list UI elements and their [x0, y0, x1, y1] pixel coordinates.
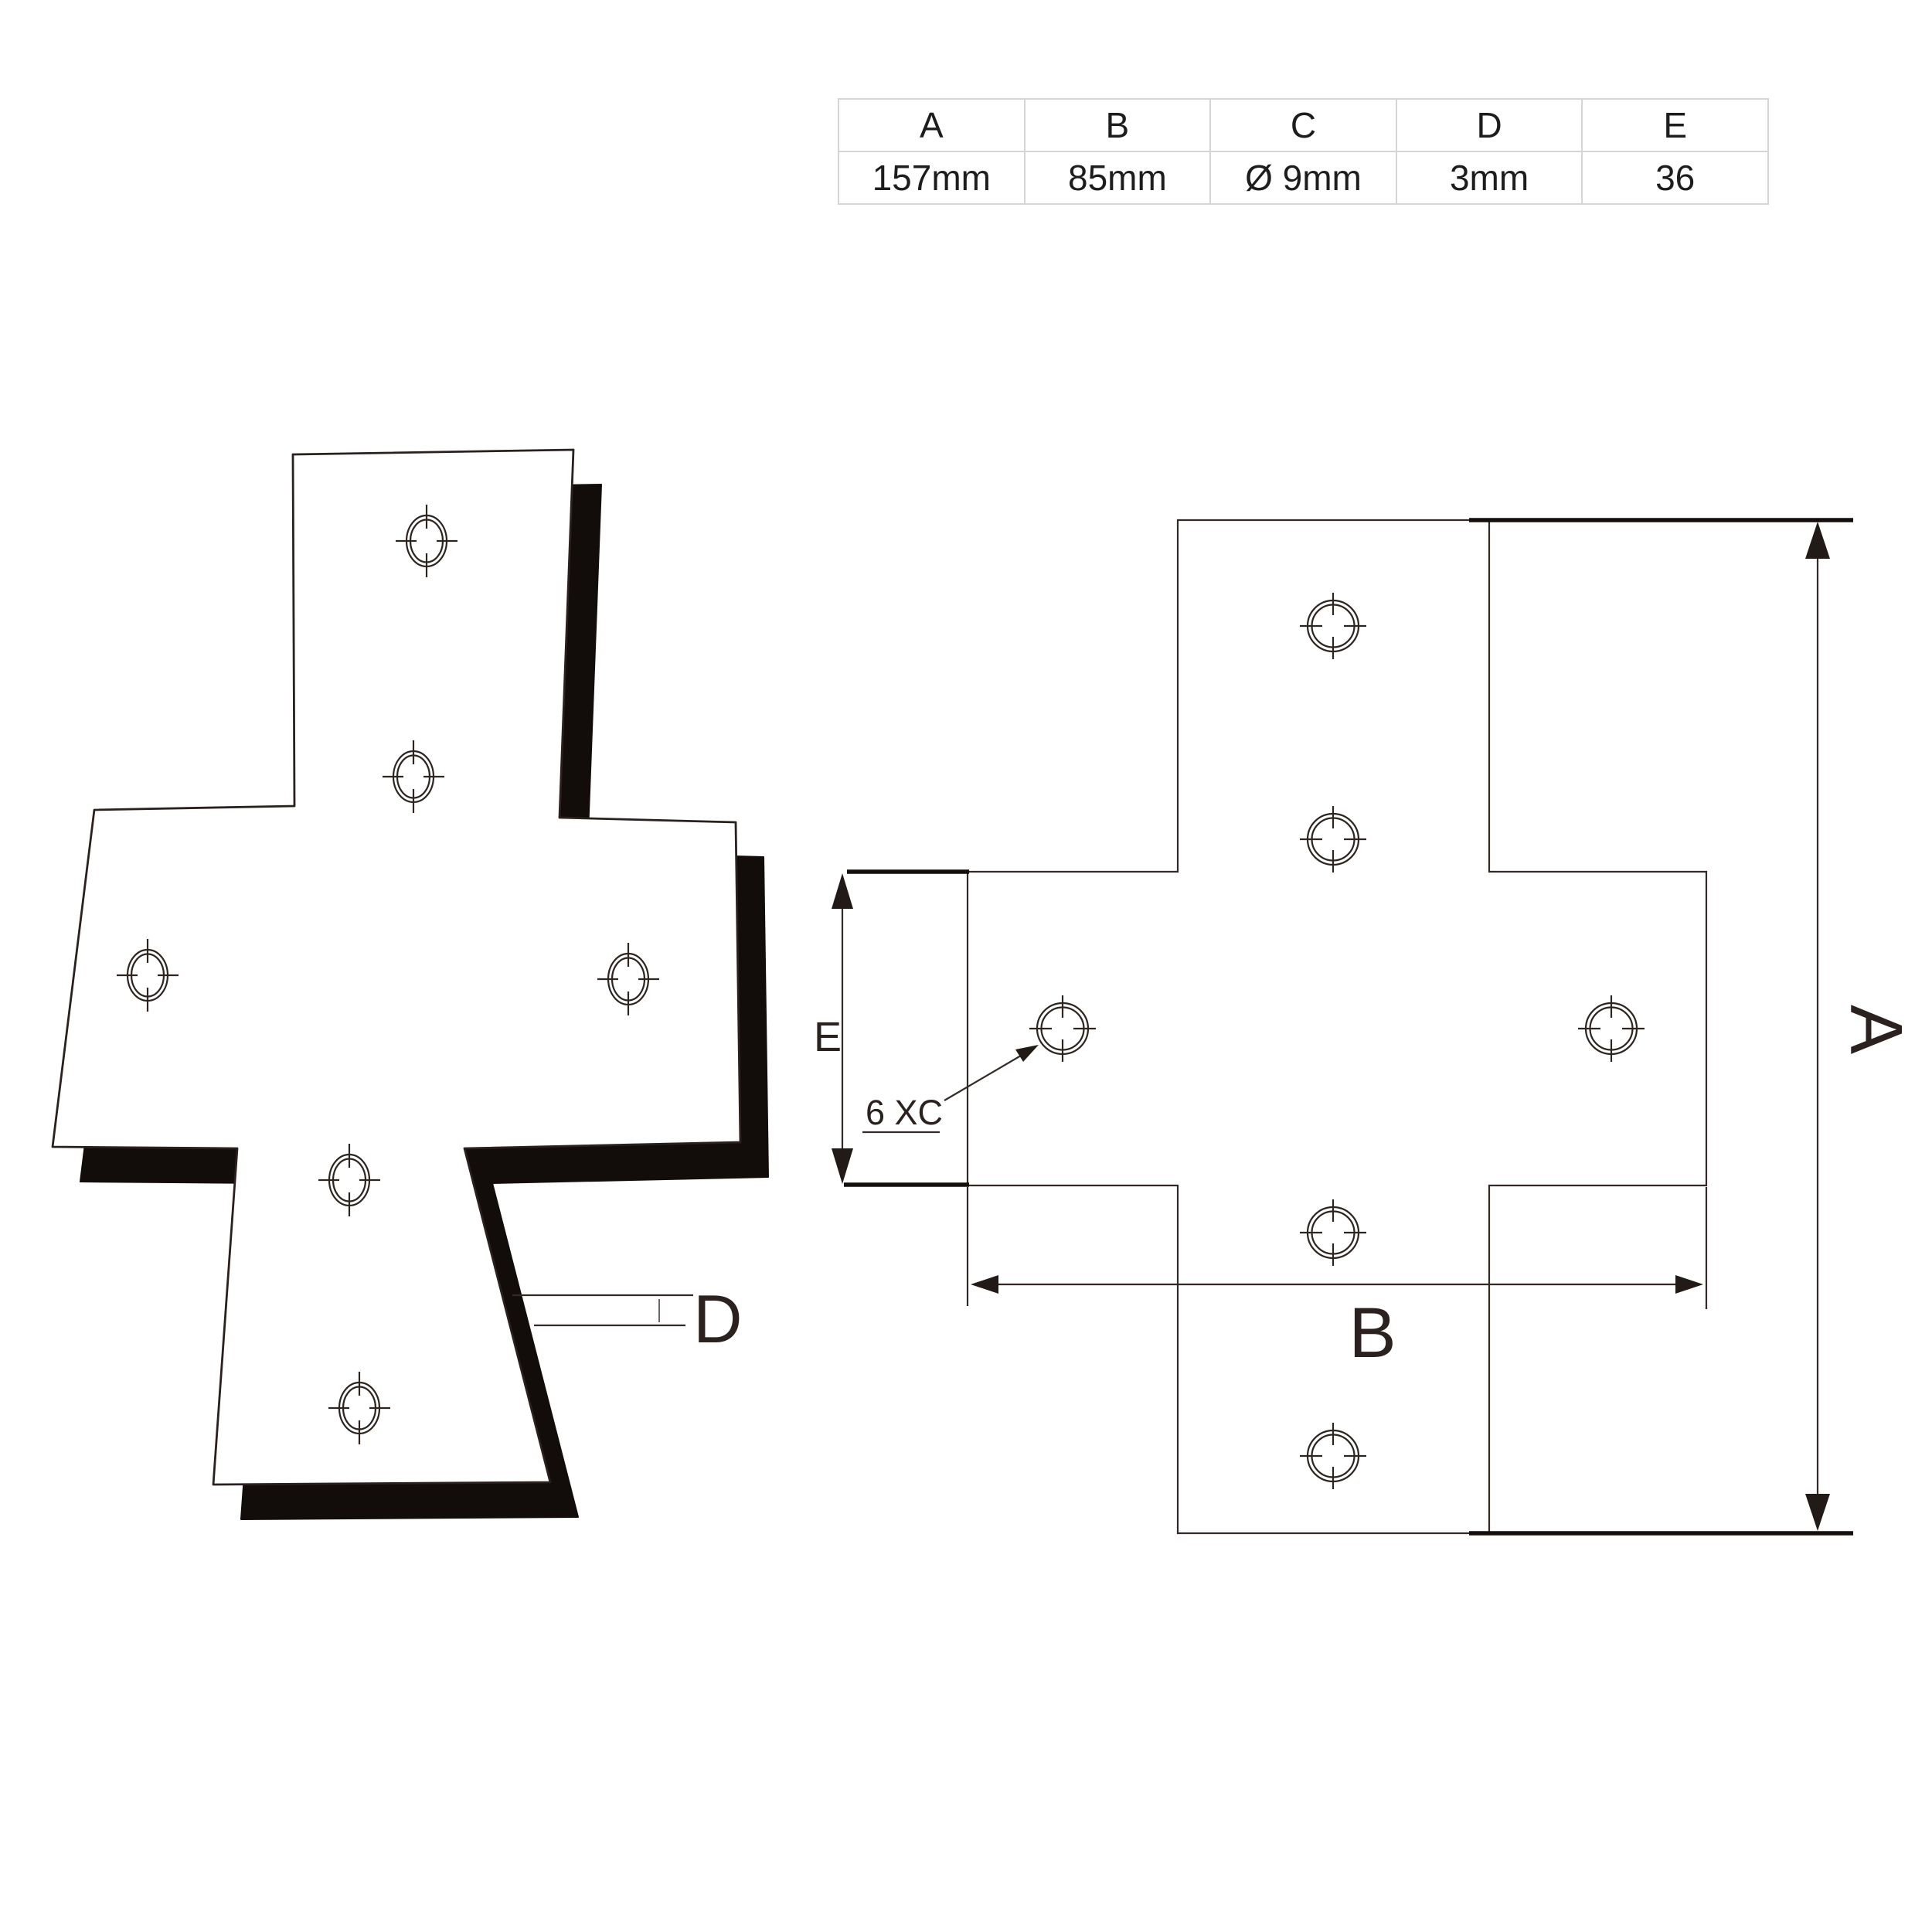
drawing-sheet: A B C D E 157mm 85mm Ø 9mm 3mm 36	[0, 0, 1932, 1932]
holes-note-label: 6 XC	[866, 1093, 943, 1132]
plan-cross-outline	[968, 520, 1706, 1533]
technical-drawing-canvas: D A	[0, 0, 1932, 1932]
iso-plate-top-face	[53, 450, 740, 1485]
iso-view: D	[53, 450, 768, 1519]
dim-d-label: D	[693, 1281, 743, 1357]
dim-a: A	[1805, 522, 1917, 1531]
plan-view: A B E 6 XC	[814, 520, 1917, 1533]
dim-e-label: E	[814, 1014, 842, 1060]
dim-e: E	[814, 873, 853, 1184]
thickness-callout: D	[512, 1281, 743, 1357]
dim-b-label: B	[1349, 1294, 1396, 1372]
dim-a-label: A	[1835, 1005, 1917, 1054]
